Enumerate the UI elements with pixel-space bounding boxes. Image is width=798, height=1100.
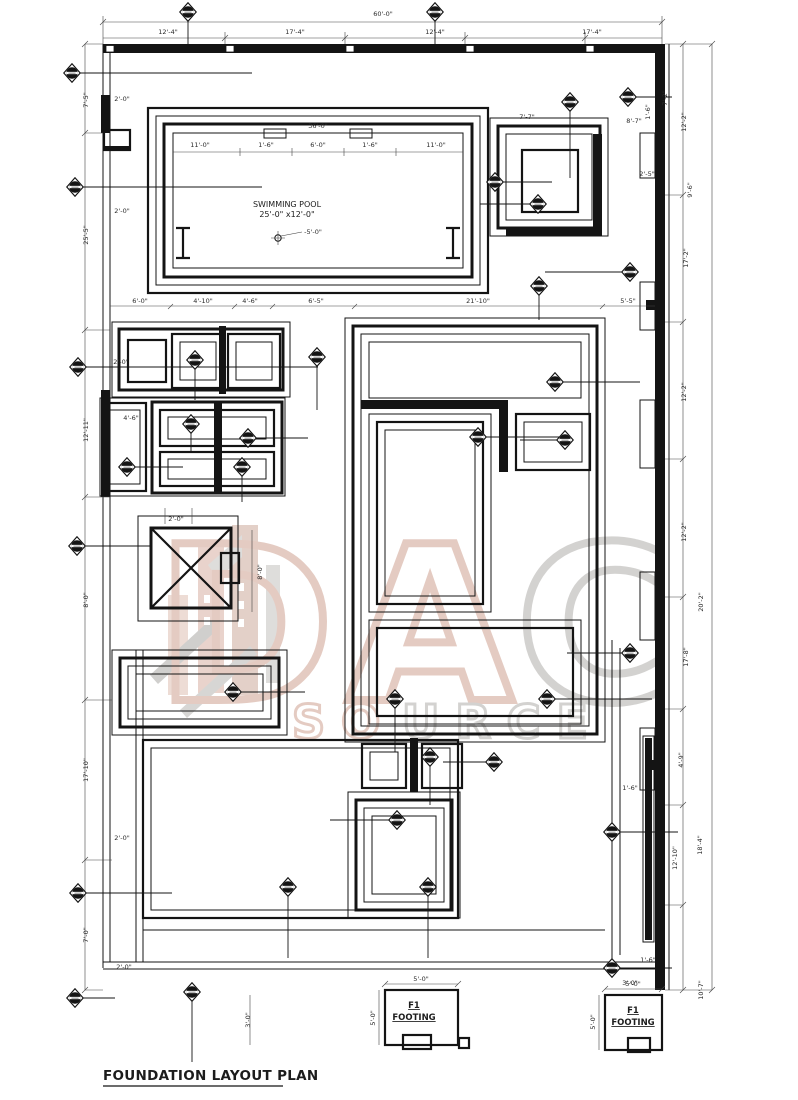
footing-marker-icon: [531, 277, 547, 296]
dimension-label: 12'-11": [82, 418, 90, 442]
footing-marker-icon: [70, 884, 86, 903]
dimension-label: 17'-4": [582, 28, 602, 36]
dimension-label: 4'-6": [242, 297, 257, 305]
pool-depth-label: -5'-0": [304, 228, 322, 236]
dimension-label: 6'-5": [308, 297, 323, 305]
footing-marker-icon: [620, 88, 636, 107]
dimension-label: 1'-6": [622, 784, 637, 792]
footing-detail-2: F1 FOOTING 5'-0" 5'-0": [589, 980, 665, 1052]
footing-marker-icon: [427, 3, 443, 22]
dimension-label: 17'-2": [682, 248, 690, 268]
pool-size-label: 25'-0" x12'-0": [259, 210, 314, 219]
dimension-label: 8'-0": [82, 592, 90, 607]
swimming-pool: SWIMMING POOL 25'-0" x12'-0" -5'-0": [148, 108, 488, 293]
footing-marker-icon: [547, 373, 563, 392]
dimension-label: 21'-10": [466, 297, 490, 305]
dimension-label: 3'-0": [622, 979, 637, 987]
dimension-label: 60'-0": [373, 10, 393, 18]
dimension-label: 1'-6": [644, 104, 652, 119]
dimension-label: 11'-0": [426, 141, 446, 149]
watermark: D A C SO URCE: [150, 500, 674, 751]
footing-marker-icon: [64, 64, 80, 83]
footing-marker-icon: [184, 983, 200, 1002]
drawing-title: FOUNDATION LAYOUT PLAN: [103, 1068, 319, 1086]
dimension-label: 8'-7": [626, 117, 641, 125]
footing-marker-icon: [530, 195, 546, 214]
dimension-label: 6'-0": [132, 297, 147, 305]
dimension-label: 2'-0": [116, 963, 131, 971]
detail-marker-square: [459, 1038, 469, 1048]
dimension-label: 2'-0": [114, 207, 129, 215]
footing-marker-icon: [67, 989, 83, 1008]
dimension-label: 7'-7": [519, 113, 534, 121]
dimension-label: 7'-5": [82, 92, 90, 107]
dimension-label: 2'-5": [639, 170, 654, 178]
dimension-label: 4'-6": [123, 414, 138, 422]
dimension-label: 11'-0": [190, 141, 210, 149]
drawing-title-text: FOUNDATION LAYOUT PLAN: [103, 1068, 319, 1084]
footing-marker-icon: [486, 753, 502, 772]
footing1-side-dim: 5'-0": [369, 1010, 377, 1025]
footing-marker-icon: [562, 93, 578, 112]
dimension-label: 9'-6": [686, 182, 694, 197]
footing-marker-icon: [240, 429, 256, 448]
dimension-label: 25'-5": [82, 225, 90, 245]
footing-marker-icon: [622, 263, 638, 282]
dimension-label: 1'-6": [640, 956, 655, 964]
footing-marker-icon: [604, 823, 620, 842]
footing-marker-icon: [309, 348, 325, 367]
top-right-room: [490, 118, 608, 236]
dimension-label: 17'-8": [682, 647, 690, 667]
footing-marker-icon: [280, 878, 296, 897]
dimension-label: 12'-2": [680, 382, 688, 402]
footing1-top-dim: 5'-0": [413, 975, 428, 983]
dimension-label: 17'-10": [82, 758, 90, 782]
foundation-plan-page: D A C SO URCE: [0, 0, 798, 1100]
footing2-label: FOOTING: [611, 1018, 654, 1028]
dimension-label: 2'-0": [114, 95, 129, 103]
dimension-label: 2'-0": [113, 358, 128, 366]
dimension-label: 2'-0": [168, 515, 183, 523]
dimension-label: 1'-6": [258, 141, 273, 149]
dimension-label: 10'-7": [697, 980, 705, 1000]
footing2-side-dim: 5'-0": [589, 1014, 597, 1029]
footing-marker-icon: [557, 431, 573, 450]
footing1-id: F1: [408, 1001, 420, 1011]
dimension-label: 12'-2": [680, 112, 688, 132]
dimension-label: 3'-0": [244, 1012, 252, 1027]
dimension-label: 8'-0": [256, 564, 264, 579]
dimension-label: 12'-4": [158, 28, 178, 36]
dimension-label: 7'-0": [82, 927, 90, 942]
right-grade-beam: [655, 44, 665, 990]
footing-marker-icon: [234, 458, 250, 477]
dimension-label: 2'-0": [114, 834, 129, 842]
footing-marker-icon: [119, 458, 135, 477]
footing-marker-icon: [67, 178, 83, 197]
footing-marker-icon: [487, 173, 503, 192]
dimension-label: 36'-0": [308, 122, 328, 130]
footing-marker-icon: [180, 3, 196, 22]
footing2-id: F1: [627, 1006, 639, 1016]
dimension-label: 4'-10": [193, 297, 213, 305]
pool-name-label: SWIMMING POOL: [253, 200, 322, 209]
dimension-label: 18'-4": [696, 835, 704, 855]
dimension-label: 7'-2": [661, 90, 669, 105]
dimension-label: 20'-2": [697, 592, 705, 612]
dimension-label: 6'-0": [310, 141, 325, 149]
foundation-plan-drawing: D A C SO URCE: [0, 0, 798, 1100]
pool-ladder-icon: [176, 228, 190, 258]
bottom-center-rooms: [348, 738, 462, 918]
footing-marker-icon: [70, 358, 86, 377]
dimension-label: 4'-9": [677, 752, 685, 767]
footing1-label: FOOTING: [392, 1013, 435, 1023]
pool-ladder-icon: [446, 228, 460, 258]
top-grade-beam: [103, 44, 665, 53]
footing-marker-icon: [187, 351, 203, 370]
footing-detail-1: F1 FOOTING 5'-0" 5'-0": [369, 975, 469, 1049]
dimension-label: 17'-4": [285, 28, 305, 36]
dimension-label: 12'-2": [680, 522, 688, 542]
footing-marker-icon: [389, 811, 405, 830]
dimension-label: 12'-10": [671, 846, 679, 870]
dimension-label: 5'-5": [620, 297, 635, 305]
dimension-label: 1'-6": [362, 141, 377, 149]
footing-marker-icon: [69, 537, 85, 556]
